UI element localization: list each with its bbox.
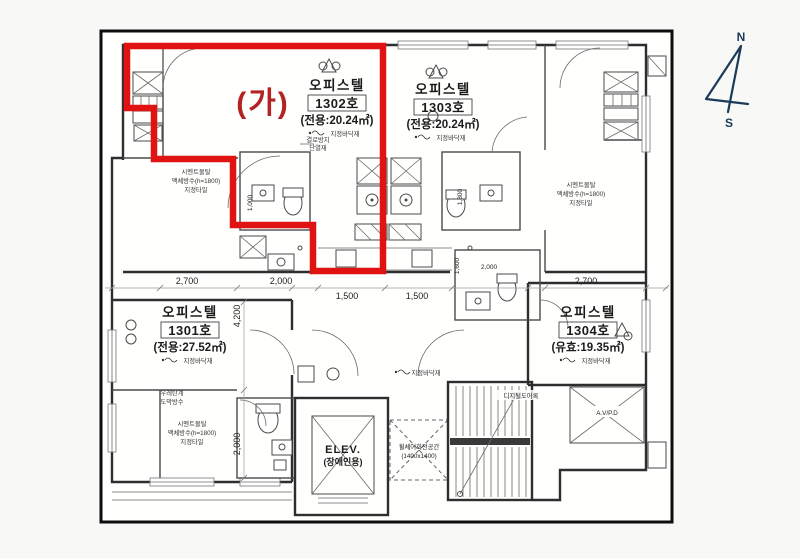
waterproof-note: 도막방수 [160, 397, 183, 406]
avpd-label: A.V/P.D [596, 410, 618, 417]
door-lock-note: 디지털도어록 [504, 391, 539, 400]
unit-area: (유효:19.35㎡) [552, 340, 625, 354]
elevator-use-label: (장애인용) [323, 456, 362, 467]
wall-finish-note: 액체방수(h=1800) [557, 189, 606, 198]
unit-type: 오피스텔 [415, 82, 471, 97]
floor-plan-canvas: (가) 오피스텔 1302호 (전용:20.24㎡) 지정바닥재 오피스텔 13… [0, 0, 800, 558]
unit-type: 오피스텔 [560, 305, 616, 320]
unit-area: (전용:20.24㎡) [407, 117, 480, 131]
wheelchair-size-label: (1400x1400) [401, 453, 436, 460]
wall-finish-note: 시멘트몰탈 [182, 167, 211, 176]
unit-number: 1303호 [421, 100, 464, 115]
floor-finish-note: 지정바닥재 [184, 356, 213, 365]
corridor-floor-note: 지정바닥재 [412, 368, 441, 377]
north-compass-icon: N S [706, 30, 748, 130]
dim-label: 1,800 [457, 188, 464, 205]
unit-type: 오피스텔 [309, 78, 365, 93]
wall-finish-note: 시멘트몰탈 [567, 180, 596, 189]
unit-number: 1304호 [566, 323, 609, 338]
condensation-note: 결로방지 [306, 135, 329, 144]
wall-finish-note: 액체방수(h=1800) [172, 176, 221, 185]
dim-label: 1,600 [454, 257, 461, 274]
dim-label: 2,000 [232, 433, 242, 456]
unit-number: 1301호 [168, 323, 211, 338]
unit-number: 1302호 [315, 96, 358, 111]
condensation-note: 단열재 [309, 143, 327, 152]
dim-label: 2,000 [270, 276, 293, 286]
waterproof-note: 우레탄계 [160, 388, 183, 397]
dim-label: 1,500 [336, 291, 359, 301]
unit-type: 오피스텔 [162, 305, 218, 320]
compass-south-label: S [725, 116, 733, 130]
unit-area: (전용:20.24㎡) [301, 113, 374, 127]
dim-label: 2,700 [575, 276, 598, 286]
dim-label: 2,000 [481, 264, 498, 271]
compass-north-label: N [737, 30, 746, 44]
floor-finish-note: 지정바닥재 [437, 133, 466, 142]
unit-area: (전용:27.52㎡) [154, 340, 227, 354]
wall-finish-note: 액체방수(h=1800) [168, 428, 217, 437]
wall-finish-note: 지정타일 [184, 185, 207, 194]
floor-finish-note: 지정바닥재 [582, 356, 611, 365]
wall-finish-note: 시멘트몰탈 [178, 419, 207, 428]
dim-label: 4,200 [232, 305, 242, 328]
wheelchair-label: 휠체어회전공간 [399, 442, 440, 451]
dim-label: 1,000 [247, 194, 254, 211]
floor-finish-note: 지정바닥재 [331, 129, 360, 138]
wall-finish-note: 지정타일 [180, 437, 203, 446]
dim-label: 1,500 [406, 291, 429, 301]
elevator-label: ELEV. [325, 444, 361, 456]
wall-finish-note: 지정타일 [569, 198, 592, 207]
highlight-label: (가) [236, 87, 290, 120]
dim-label: 2,700 [176, 276, 199, 286]
